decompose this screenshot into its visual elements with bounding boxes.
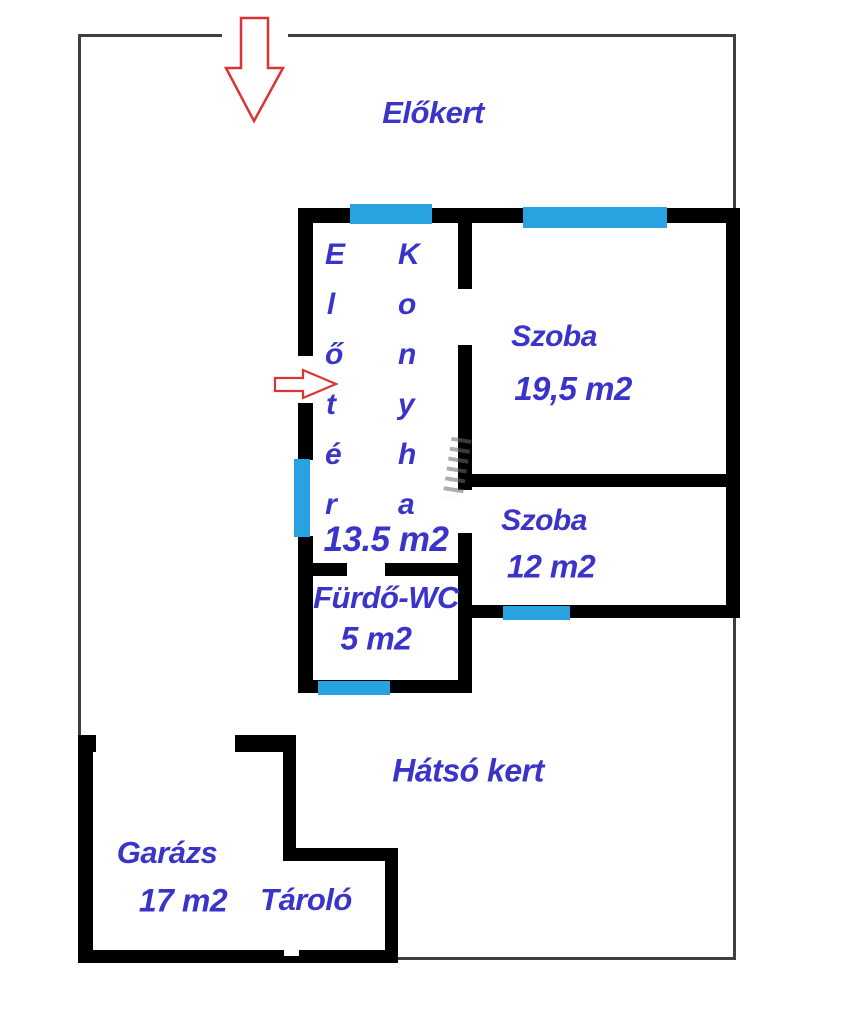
plot-boundary-left [78, 34, 81, 738]
garage-bottom-wall-gap [284, 950, 299, 956]
garage-label: Garázs [117, 835, 217, 871]
back-garden-label: Hátsó kert [392, 753, 544, 790]
plot-boundary-top-right [288, 34, 736, 37]
street-entrance-arrow-down-icon [220, 12, 290, 128]
house-left-wall-middle [298, 403, 313, 460]
storage-top-wall [283, 848, 398, 861]
storage-label: Tároló [260, 882, 352, 918]
floor-plan: Előkert Előtér Konyha 13.5 m2 Szoba 19,5… [0, 0, 863, 1024]
house-right-wall [726, 208, 740, 618]
livingroom-bedroom-wall [472, 474, 740, 487]
hall-side-window-icon [294, 459, 310, 537]
bathroom-area-label: 5 m2 [341, 621, 412, 658]
garage-left-wall [78, 735, 93, 963]
bedroom-area-label: 12 m2 [507, 549, 595, 586]
garage-bottom-wall [78, 950, 398, 963]
front-garden-label: Előkert [382, 95, 484, 131]
bathroom-top-wall-right [385, 563, 458, 576]
hall-kitchen-area-label: 13.5 m2 [324, 520, 449, 560]
kitchen-label: Konyha [398, 230, 410, 530]
storage-right-wall [385, 848, 398, 963]
bedroom-label: Szoba [501, 504, 587, 538]
bathroom-window-icon [318, 681, 390, 695]
bedroom-window-icon [503, 606, 570, 620]
bathroom-label: Fürdő-WC [313, 580, 459, 616]
living-room-label: Szoba [511, 320, 597, 354]
garage-top-wall-stub [78, 735, 96, 752]
living-room-area-label: 19,5 m2 [514, 370, 632, 408]
house-left-wall-upper [298, 208, 313, 356]
livingroom-window-icon [523, 207, 667, 228]
bedroom-bottom-wall [458, 605, 740, 618]
kitchen-livingroom-wall [458, 208, 472, 289]
garage-area-label: 17 m2 [139, 883, 227, 920]
plot-boundary-top-left [78, 34, 222, 37]
kitchen-window-icon [350, 204, 432, 224]
storage-left-wall [283, 735, 296, 860]
bathroom-top-wall-left [311, 563, 347, 576]
hall-label: Előtér [325, 230, 337, 530]
house-left-wall-lower [298, 536, 313, 693]
